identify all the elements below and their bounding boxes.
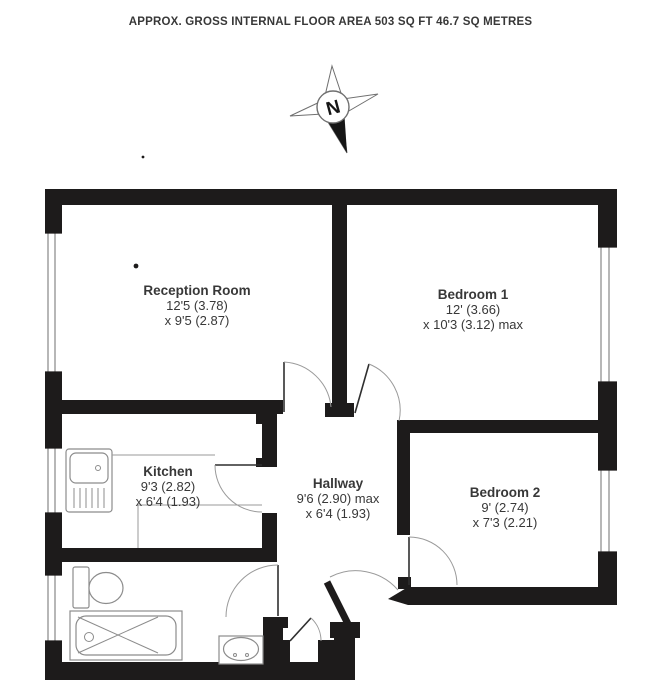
room-name: Bedroom 1 <box>423 287 523 302</box>
interior-walls <box>62 205 598 680</box>
bedroom1-door <box>355 364 400 421</box>
bathroom-door <box>226 565 278 617</box>
entrance-front-door <box>327 571 398 626</box>
room-name: Bedroom 2 <box>470 485 541 500</box>
window-bathroom <box>45 575 62 641</box>
room-dim: x 6'4 (1.93) <box>136 494 201 509</box>
room-label-bedroom1: Bedroom 1 12' (3.66) x 10'3 (3.12) max <box>423 287 523 332</box>
room-dim: 9'6 (2.90) max <box>297 491 380 506</box>
print-dot <box>134 264 139 269</box>
toilet-icon <box>73 567 123 608</box>
hall-cupboard-door <box>290 618 321 641</box>
room-label-reception: Reception Room 12'5 (3.78) x 9'5 (2.87) <box>143 283 250 328</box>
room-name: Kitchen <box>136 464 201 479</box>
washbasin-icon <box>219 636 263 664</box>
bedroom2-door <box>409 537 457 585</box>
room-name: Reception Room <box>143 283 250 298</box>
compass-north-icon: N <box>290 66 378 153</box>
room-dim: 9' (2.74) <box>470 500 541 515</box>
kitchen-sink-icon <box>66 449 112 512</box>
reception-door <box>284 362 331 412</box>
window-bedroom1 <box>598 247 617 382</box>
room-name: Hallway <box>297 476 380 491</box>
bathtub-icon <box>70 611 182 660</box>
room-dim: 12' (3.66) <box>423 302 523 317</box>
room-dim: 12'5 (3.78) <box>143 298 250 313</box>
floor-plan-drawing: N <box>0 0 661 696</box>
exterior-walls <box>45 189 617 680</box>
room-label-bedroom2: Bedroom 2 9' (2.74) x 7'3 (2.21) <box>470 485 541 530</box>
room-label-kitchen: Kitchen 9'3 (2.82) x 6'4 (1.93) <box>136 464 201 509</box>
room-dim: x 10'3 (3.12) max <box>423 317 523 332</box>
room-dim: x 6'4 (1.93) <box>297 506 380 521</box>
room-dim: x 9'5 (2.87) <box>143 313 250 328</box>
window-reception <box>45 233 62 372</box>
room-dim: x 7'3 (2.21) <box>470 515 541 530</box>
window-kitchen <box>45 448 62 513</box>
room-dim: 9'3 (2.82) <box>136 479 201 494</box>
room-label-hallway: Hallway 9'6 (2.90) max x 6'4 (1.93) <box>297 476 380 521</box>
floorplan-page: APPROX. GROSS INTERNAL FLOOR AREA 503 SQ… <box>0 0 661 696</box>
print-dot <box>142 156 145 159</box>
window-bedroom2 <box>598 470 617 552</box>
